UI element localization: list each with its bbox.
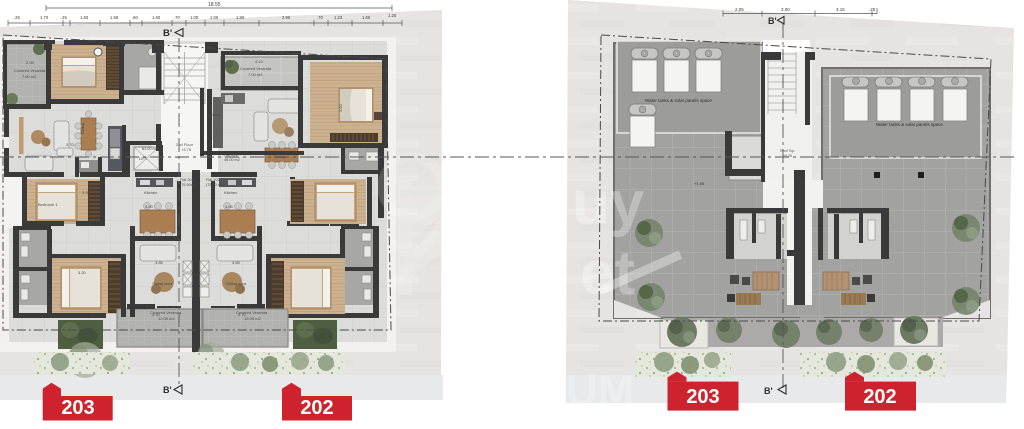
- svg-text:3.15: 3.15: [836, 7, 845, 12]
- svg-text:.25: .25: [14, 15, 20, 20]
- svg-text:3.60: 3.60: [338, 103, 343, 112]
- svg-text:1.23: 1.23: [334, 15, 343, 20]
- svg-text:3.00: 3.00: [781, 7, 790, 12]
- svg-text:Kitchen: Kitchen: [208, 112, 221, 117]
- svg-text:Flat 201: Flat 201: [224, 153, 238, 157]
- svg-text:Water tanks & solar panels sp: Water tanks & solar panels space: [876, 122, 943, 127]
- svg-text:2.05: 2.05: [735, 7, 744, 12]
- svg-text:1.00: 1.00: [210, 15, 219, 20]
- svg-text:3.35: 3.35: [82, 190, 91, 195]
- svg-text:203: 203: [61, 397, 94, 419]
- svg-text:B': B': [163, 385, 172, 395]
- svg-text:B': B': [764, 386, 773, 396]
- svg-text:Covered Veranda: Covered Veranda: [240, 66, 272, 71]
- svg-text:49.00 m2: 49.00 m2: [224, 158, 240, 162]
- svg-text:1.25: 1.25: [388, 13, 397, 18]
- svg-text:UM: UM: [566, 366, 634, 415]
- svg-text:202: 202: [300, 397, 333, 419]
- svg-text:.60: .60: [132, 15, 138, 20]
- svg-text:12.00 m2: 12.00 m2: [244, 316, 261, 321]
- svg-text:Sitting area: Sitting area: [226, 281, 247, 286]
- svg-text:203: 203: [686, 386, 719, 408]
- svg-text:Flat 203: Flat 203: [180, 178, 194, 182]
- svg-text:.25: .25: [869, 7, 876, 12]
- svg-text:(75.90m2): (75.90m2): [180, 183, 198, 187]
- svg-text:3.85: 3.85: [155, 260, 164, 265]
- svg-text:.70: .70: [174, 15, 180, 20]
- svg-text:3.20: 3.20: [78, 270, 87, 275]
- svg-text:7.00 m2: 7.00 m2: [248, 72, 263, 77]
- svg-text:Covered Veranda: Covered Veranda: [14, 68, 46, 73]
- svg-text:Covered Veranda: Covered Veranda: [236, 310, 268, 315]
- svg-text:Dining: Dining: [274, 154, 285, 159]
- svg-text:4.65: 4.65: [225, 204, 234, 209]
- svg-text:+3.75: +3.75: [181, 147, 192, 152]
- svg-text:4.50: 4.50: [145, 204, 154, 209]
- svg-text:1.60: 1.60: [362, 15, 371, 20]
- svg-text:Kitchen: Kitchen: [144, 190, 157, 195]
- svg-text:202: 202: [863, 386, 896, 408]
- svg-text:18.55: 18.55: [208, 2, 221, 8]
- svg-text:Covered Veranda: Covered Veranda: [150, 310, 182, 315]
- svg-text:Water tanks & solar panels sp: Water tanks & solar panels space: [645, 98, 712, 103]
- svg-text:Roof Top: Roof Top: [780, 149, 794, 153]
- svg-text:2.05: 2.05: [26, 60, 35, 65]
- svg-text:1.80: 1.80: [236, 15, 245, 20]
- svg-text:1.60: 1.60: [152, 15, 161, 20]
- svg-text:7.60 m2: 7.60 m2: [22, 74, 37, 79]
- svg-text:.25: .25: [61, 15, 67, 20]
- svg-text:Flat 204: Flat 204: [142, 142, 156, 146]
- svg-text:B': B': [163, 28, 172, 39]
- svg-text:Dining: Dining: [81, 123, 85, 134]
- svg-text:Flat 202: Flat 202: [206, 178, 220, 182]
- svg-text:uy: uy: [572, 169, 645, 238]
- svg-text:3.85: 3.85: [232, 260, 241, 265]
- svg-text:(75.00 m2): (75.00 m2): [206, 183, 225, 187]
- svg-text:1.70: 1.70: [40, 15, 49, 20]
- svg-text:1.00: 1.00: [190, 15, 199, 20]
- svg-text:1.60: 1.60: [80, 15, 89, 20]
- svg-text:Bedroom 1: Bedroom 1: [38, 202, 58, 207]
- svg-text:12.00 m2: 12.00 m2: [158, 316, 175, 321]
- svg-text:B': B': [768, 16, 777, 26]
- svg-text:1.58: 1.58: [110, 15, 119, 20]
- svg-text:+1.05: +1.05: [694, 181, 705, 186]
- svg-text:4.10: 4.10: [255, 59, 264, 64]
- svg-text:2.90: 2.90: [282, 15, 291, 20]
- svg-text:.70: .70: [317, 15, 323, 20]
- svg-text:Sitting area: Sitting area: [152, 281, 173, 286]
- svg-text:3.70: 3.70: [66, 142, 75, 147]
- svg-text:81.00 m2: 81.00 m2: [142, 147, 158, 151]
- svg-text:Kitchen: Kitchen: [224, 190, 237, 195]
